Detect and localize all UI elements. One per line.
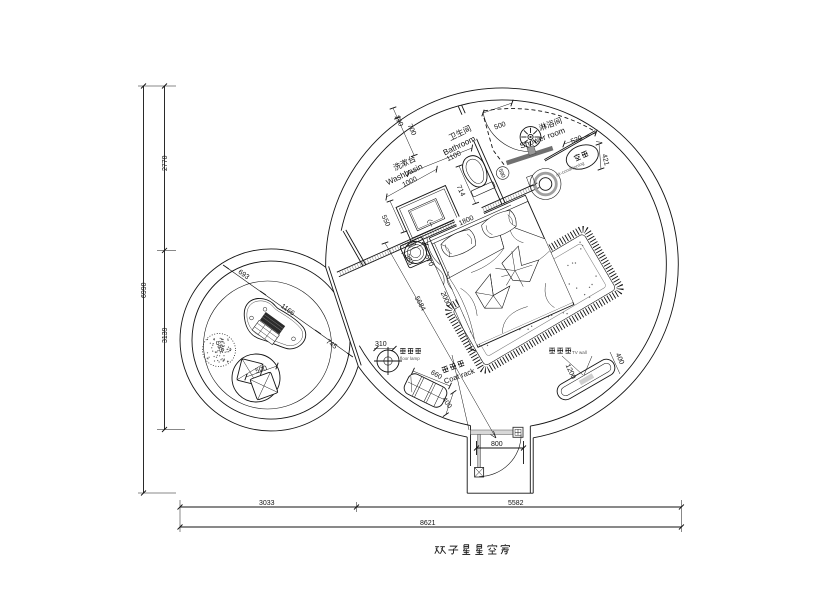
svg-text:2770: 2770 xyxy=(162,155,169,171)
svg-text:3139: 3139 xyxy=(162,327,169,343)
svg-text:floor lamp: floor lamp xyxy=(400,356,420,361)
svg-text:3033: 3033 xyxy=(259,500,275,507)
svg-text:8621: 8621 xyxy=(420,520,436,527)
svg-text:TV wall: TV wall xyxy=(572,350,587,355)
svg-text:800: 800 xyxy=(491,441,503,448)
svg-text:6990: 6990 xyxy=(141,282,148,298)
svg-text:310: 310 xyxy=(375,341,387,348)
svg-text:5582: 5582 xyxy=(508,500,524,507)
